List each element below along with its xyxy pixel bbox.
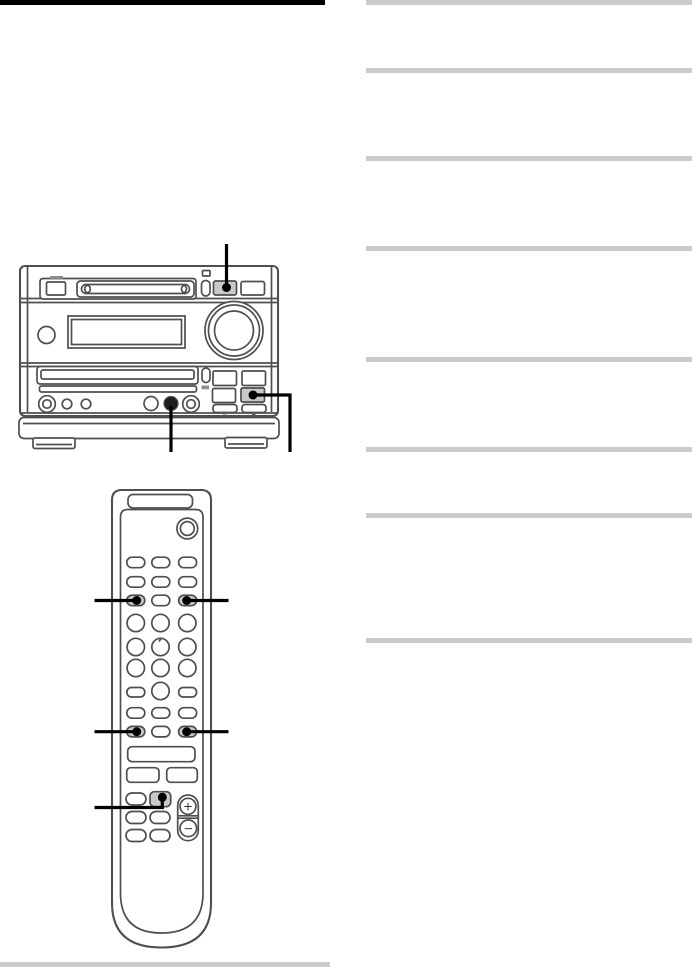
callout-dot-row3-left — [132, 596, 141, 605]
remote-number-button — [152, 659, 169, 676]
remote-button — [126, 830, 146, 842]
small-knob-2 — [81, 399, 91, 409]
remote-number-button — [127, 614, 144, 631]
volume-plus-label: + — [183, 800, 193, 814]
callout-dot-row6-right — [182, 727, 191, 736]
md-slot-opening — [82, 285, 190, 294]
main-unit-illustration — [19, 244, 290, 452]
callout-dot-square-button — [158, 793, 167, 802]
remote-button — [126, 812, 146, 824]
front-round-button — [38, 327, 55, 344]
remote-button — [127, 557, 145, 568]
foot-left — [33, 438, 75, 449]
cd-tray-inner — [41, 370, 194, 379]
remote-button — [179, 708, 197, 719]
remote-volume-rocker: + − — [178, 795, 199, 841]
display-window-inner — [72, 320, 182, 345]
illustrations-canvas: + − — [0, 0, 692, 969]
callout-dot-lower-right-button — [249, 391, 258, 400]
remote-button — [152, 595, 170, 606]
jack-double-circle-2 — [183, 396, 200, 413]
callout-dot-row6-left — [132, 727, 141, 736]
lower-button-3 — [213, 389, 236, 403]
remote-button — [179, 577, 197, 588]
top-oval-button — [202, 281, 211, 297]
lower-flat-button-1 — [213, 405, 237, 413]
remote-number-button — [152, 614, 169, 631]
cd-tray-lip — [40, 386, 197, 392]
remote-button — [127, 577, 145, 588]
volume-minus-label: − — [183, 822, 193, 836]
lower-oval-button — [202, 368, 210, 383]
remote-number-button — [152, 682, 169, 699]
jack-double-circle-1 — [39, 396, 56, 413]
top-small-button — [47, 282, 66, 295]
remote-top-notch — [128, 495, 193, 509]
remote-number-button — [179, 659, 196, 676]
remote-button — [179, 688, 197, 698]
remote-button — [179, 557, 197, 568]
remote-medium-button-right — [167, 768, 198, 783]
remote-button — [152, 577, 170, 588]
base-plinth — [19, 418, 279, 439]
remote-number-button — [179, 614, 196, 631]
top-indicator-mark — [50, 276, 63, 279]
foot-right — [225, 438, 267, 449]
remote-wide-button — [128, 747, 195, 762]
remote-button — [127, 688, 145, 698]
remote-button — [150, 830, 170, 842]
lower-button-1 — [213, 371, 237, 386]
callout-dot-row3-right — [182, 596, 191, 605]
remote-medium-button-left — [127, 768, 159, 783]
top-tiny-button — [203, 271, 211, 277]
remote-button — [152, 557, 170, 568]
button-tick-1 — [223, 415, 227, 417]
lower-button-2 — [242, 371, 266, 386]
button-tick-2 — [252, 414, 256, 416]
lower-indicator-mark — [202, 386, 210, 390]
top-right-button — [241, 282, 265, 296]
remote-number-button — [127, 659, 144, 676]
remote-button — [150, 812, 170, 824]
remote-button — [127, 708, 145, 719]
small-knob-1 — [62, 399, 72, 409]
unit-base — [19, 418, 279, 449]
mic-jack — [144, 397, 158, 411]
remote-illustration: + − — [95, 490, 229, 948]
remote-button — [126, 793, 146, 805]
remote-number-button — [179, 638, 196, 655]
remote-button — [152, 708, 170, 719]
remote-button — [152, 726, 170, 737]
remote-number-button — [127, 638, 144, 655]
callout-dot-top-button — [222, 283, 231, 292]
lower-flat-button-2 — [242, 405, 266, 413]
remote-number-button — [152, 638, 169, 655]
manual-page: + − — [0, 0, 692, 969]
